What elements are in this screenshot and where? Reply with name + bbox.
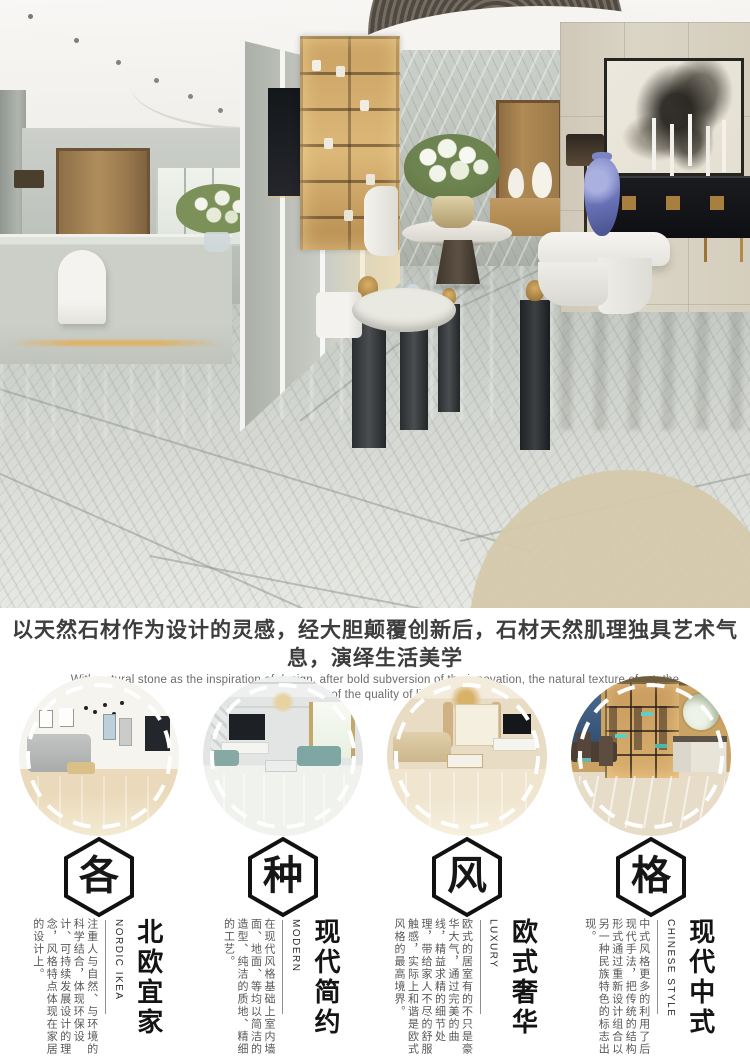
shelf-objects — [609, 706, 675, 750]
style-text-nordic: 注重人与自然、与环境的科学结合，体现环保设计、可持续发展设计的理念，风格特点体现… — [30, 918, 168, 1062]
style-text-modern: 在现代风格基础上室内墙面、地面、等均以简洁的造型、纯洁的质地、精细的工艺。 MO… — [221, 918, 345, 1062]
style-text-luxury: 欧式的居室有的不只是豪华大气，通过完美的曲线，精益求精的细节处理，带给家人不尽的… — [392, 918, 543, 1062]
hexagon-badge: 种 — [246, 836, 320, 918]
chandelier — [271, 692, 295, 712]
style-gallery: 各 注重人与自然、与环境的科学结合，体现环保设计、可持续发展设计的理念，风格特点… — [0, 676, 750, 1062]
style-text-chinese: 中式风格更多的利用了后现代手法，把传统的结构形式通过重新设计组合以另一种民族特色… — [582, 918, 720, 1062]
style-title-english: CHINESE STYLE — [665, 919, 676, 1017]
display-pedestal — [520, 300, 550, 450]
tv-screen — [145, 716, 170, 751]
hexagon-badge: 风 — [430, 836, 504, 918]
divider-line — [105, 920, 106, 1014]
beige-sofa — [393, 732, 451, 762]
style-photo-modern — [203, 676, 363, 836]
cabinet — [119, 718, 132, 746]
style-description: 中式风格更多的利用了后现代手法，把传统的结构形式通过重新设计组合以另一种民族特色… — [582, 918, 650, 1062]
coffee-table — [67, 762, 95, 774]
intro-section: 以天然石材作为设计的灵感，经大胆颠覆创新后，石材天然肌理独具艺术气息，演绎生活美… — [0, 608, 750, 676]
wall-frames — [39, 710, 53, 728]
table-shadow — [406, 280, 510, 294]
style-title-chinese: 现代中式 — [683, 918, 720, 1038]
style-title-english: NORDIC IKEA — [113, 919, 124, 1001]
white-cabinet — [673, 736, 727, 772]
badge-character: 种 — [246, 844, 320, 908]
teal-sofa — [297, 746, 341, 766]
badge-character: 各 — [62, 844, 136, 908]
style-photo-luxury — [387, 676, 547, 836]
white-curved-bench — [538, 262, 608, 306]
floor-reflection-right — [560, 300, 750, 430]
style-description: 注重人与自然、与环境的科学结合，体现环保设计、可持续发展设计的理念，风格特点体现… — [30, 918, 98, 1062]
style-column-luxury: 风 欧式的居室有的不只是豪华大气，通过完美的曲线，精益求精的细节处理，带给家人不… — [380, 676, 554, 1062]
flower-vase — [204, 232, 230, 252]
tv-screen — [229, 714, 265, 740]
divider-line — [480, 920, 481, 1014]
style-photo-nordic — [19, 676, 179, 836]
style-title-chinese: 欧式奢华 — [506, 918, 543, 1038]
abstract-painting — [604, 58, 744, 176]
teal-accents — [615, 734, 627, 738]
white-vase — [532, 162, 552, 198]
sideboard-gold-details — [622, 196, 636, 210]
shelf-objects — [312, 60, 321, 71]
flower-urn — [432, 196, 474, 228]
style-column-nordic: 各 注重人与自然、与环境的科学结合，体现环保设计、可持续发展设计的理念，风格特点… — [12, 676, 186, 1062]
style-title-english: LUXURY — [488, 919, 499, 968]
tv-console — [493, 738, 537, 751]
white-chair — [58, 250, 106, 324]
style-title-english: MODERN — [290, 919, 301, 972]
style-title-chinese: 现代简约 — [308, 918, 345, 1038]
style-description: 在现代风格基础上室内墙面、地面、等均以简洁的造型、纯洁的质地、精细的工艺。 — [221, 918, 275, 1062]
white-flower-bouquet — [404, 134, 500, 200]
coffee-table — [447, 754, 483, 768]
dining-chairs — [577, 732, 591, 762]
floor-gloss — [405, 772, 531, 826]
headline-chinese: 以天然石材作为设计的灵感，经大胆颠覆创新后，石材天然肌理独具艺术气息，演绎生活美… — [0, 617, 750, 673]
tv-screen — [503, 714, 531, 734]
divider-line — [657, 920, 658, 1014]
ceiling-spotlights-left — [28, 14, 33, 19]
floor-gloss — [37, 776, 163, 828]
style-photo-chinese — [571, 676, 731, 836]
white-vase — [508, 168, 524, 198]
style-column-chinese: 格 中式风格更多的利用了后现代手法，把传统的结构形式通过重新设计组合以另一种民族… — [564, 676, 738, 1062]
showroom-photo — [0, 0, 750, 608]
curved-display-base — [352, 288, 456, 332]
white-chair-back — [364, 186, 398, 256]
floor-gloss — [579, 776, 725, 828]
style-column-modern: 种 在现代风格基础上室内墙面、地面、等均以简洁的造型、纯洁的质地、精细的工艺。 … — [196, 676, 370, 1062]
pendant-lights — [93, 710, 97, 714]
candlesticks — [652, 118, 656, 170]
coffee-table — [265, 760, 297, 772]
teal-sofa — [211, 750, 239, 766]
badge-character: 格 — [614, 844, 688, 908]
divider-line — [282, 920, 283, 1014]
product-detail-page: 以天然石材作为设计的灵感，经大胆颠覆创新后，石材天然肌理独具艺术气息，演绎生活美… — [0, 0, 750, 1062]
badge-character: 风 — [430, 844, 504, 908]
desk-underglow — [8, 340, 224, 346]
style-description: 欧式的居室有的不只是豪华大气，通过完美的曲线，精益求精的细节处理，带给家人不尽的… — [392, 918, 473, 1062]
style-title-chinese: 北欧宜家 — [131, 918, 168, 1038]
hexagon-badge: 格 — [614, 836, 688, 918]
moon-mirror — [681, 692, 721, 732]
table-lamp — [14, 170, 44, 188]
hexagon-badge: 各 — [62, 836, 136, 918]
floor-gloss — [223, 774, 345, 826]
window — [103, 714, 116, 740]
